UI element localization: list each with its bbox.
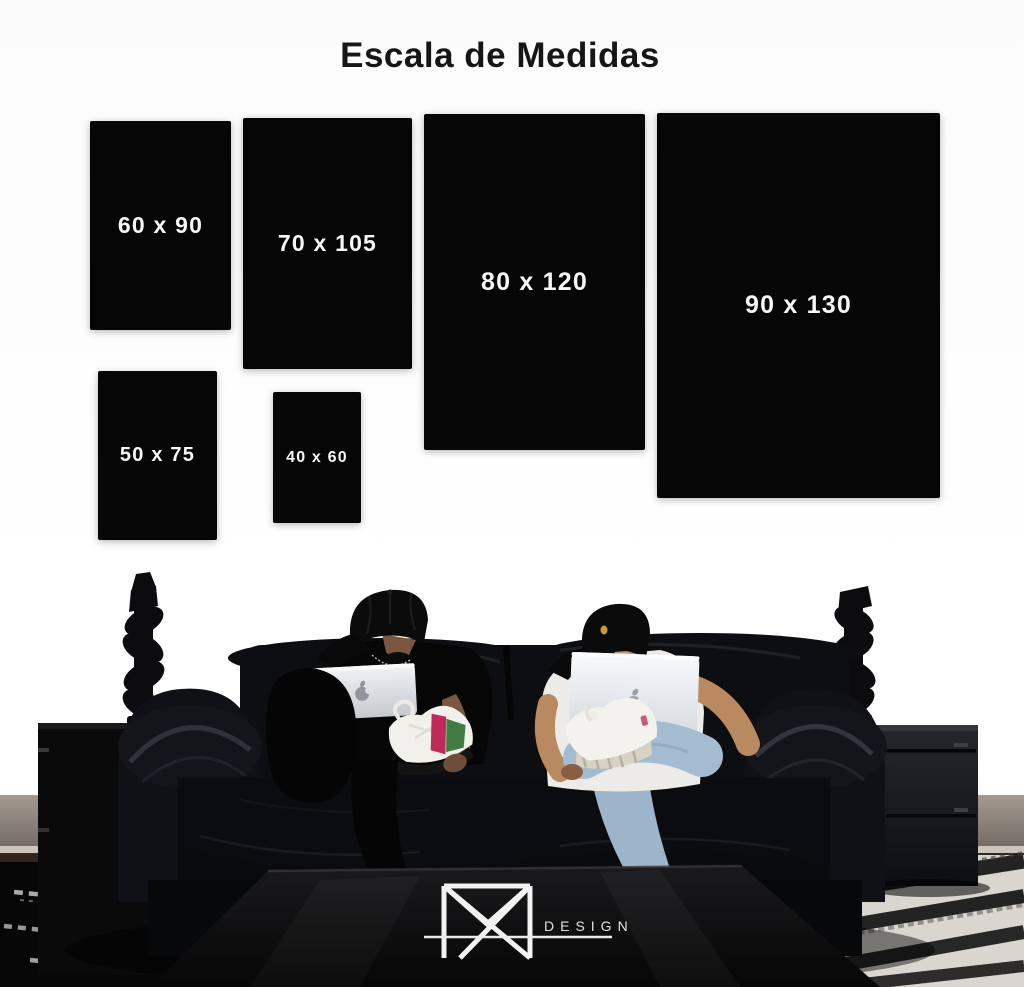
bent-knee <box>266 668 356 803</box>
size-label-40x60: 40 x 60 <box>286 449 348 467</box>
hand <box>561 764 583 780</box>
page-title: Escala de Medidas <box>0 36 1000 76</box>
size-canvas-90x130: 90 x 130 <box>657 113 940 498</box>
brand-wordmark: DESIGN <box>544 918 634 934</box>
size-canvas-40x60: 40 x 60 <box>273 392 361 523</box>
size-label-50x75: 50 x 75 <box>120 444 195 467</box>
size-guide-page: Escala de Medidas 60 x 90 70 x 105 80 x … <box>0 0 1024 987</box>
size-canvas-80x120: 80 x 120 <box>424 114 645 450</box>
size-canvas-50x75: 50 x 75 <box>98 371 217 540</box>
size-canvas-60x90: 60 x 90 <box>90 121 231 330</box>
size-canvas-70x105: 70 x 105 <box>243 118 412 369</box>
cap-badge <box>601 626 608 635</box>
size-label-60x90: 60 x 90 <box>118 212 203 239</box>
size-label-70x105: 70 x 105 <box>278 230 377 257</box>
size-label-80x120: 80 x 120 <box>481 268 588 297</box>
lifestyle-photo: DESIGN <box>0 552 1024 987</box>
size-label-90x130: 90 x 130 <box>745 291 852 320</box>
